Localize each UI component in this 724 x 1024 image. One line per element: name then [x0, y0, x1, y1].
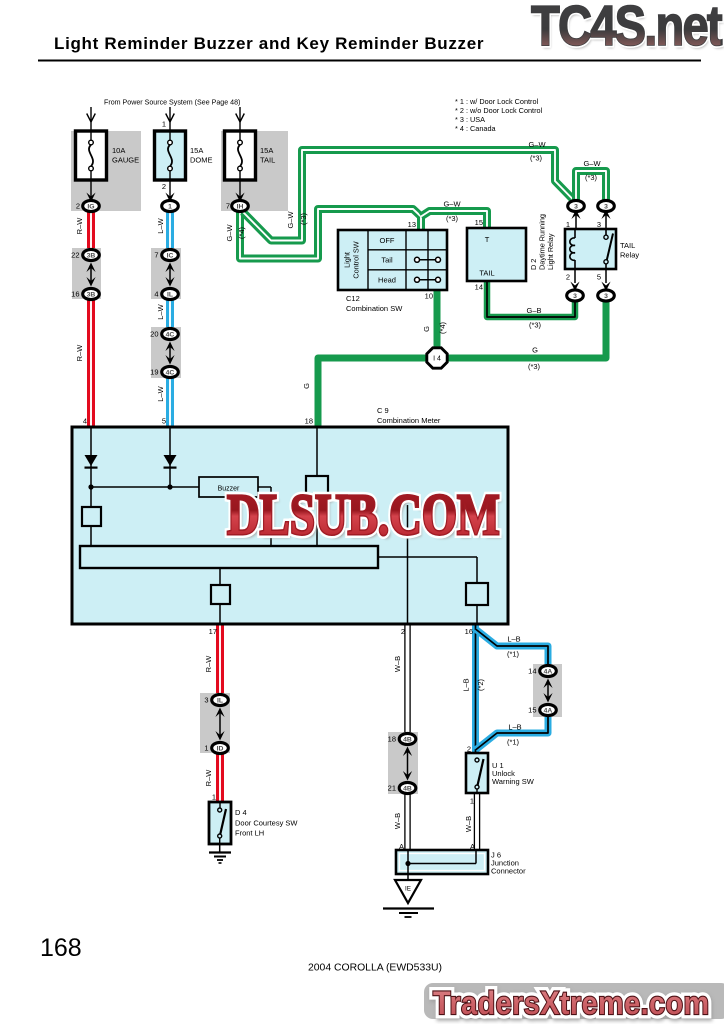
svg-text:1: 1 — [168, 203, 172, 210]
svg-text:(*3): (*3) — [530, 154, 543, 163]
svg-text:14: 14 — [475, 283, 483, 292]
svg-text:10A: 10A — [112, 146, 125, 155]
svg-text:4: 4 — [83, 417, 87, 426]
svg-text:Front LH: Front LH — [235, 829, 264, 838]
svg-text:4A: 4A — [544, 707, 553, 714]
svg-text:18: 18 — [388, 735, 396, 744]
svg-text:3: 3 — [204, 696, 208, 705]
svg-text:1: 1 — [212, 793, 216, 802]
svg-text:L–W: L–W — [156, 303, 165, 319]
svg-text:4C: 4C — [166, 331, 175, 338]
svg-text:2: 2 — [162, 182, 166, 191]
svg-text:13: 13 — [408, 220, 416, 229]
svg-text:3B: 3B — [87, 291, 96, 298]
svg-text:G: G — [532, 346, 538, 355]
svg-text:15: 15 — [475, 218, 483, 227]
svg-text:IG: IG — [87, 203, 94, 210]
svg-text:C12: C12 — [346, 294, 360, 303]
svg-text:2: 2 — [401, 627, 405, 636]
svg-text:IL: IL — [167, 291, 173, 298]
svg-text:* 4 : Canada: * 4 : Canada — [455, 124, 497, 133]
svg-text:(*3): (*3) — [529, 321, 542, 330]
svg-text:Door Courtesy SW: Door Courtesy SW — [235, 819, 298, 828]
svg-text:G–W: G–W — [583, 159, 601, 168]
svg-text:Tail: Tail — [381, 256, 393, 265]
svg-text:(*2): (*2) — [476, 678, 485, 691]
svg-text:R–W: R–W — [75, 217, 84, 235]
svg-text:TAIL: TAIL — [479, 269, 494, 278]
svg-text:Combination Meter: Combination Meter — [377, 416, 441, 425]
svg-text:4B: 4B — [403, 785, 412, 792]
svg-text:L–W: L–W — [156, 217, 165, 233]
svg-text:ID: ID — [217, 745, 224, 752]
svg-text:L–B: L–B — [508, 723, 521, 732]
svg-text:17: 17 — [209, 627, 217, 636]
svg-text:4B: 4B — [403, 736, 412, 743]
svg-text:(*1): (*1) — [507, 650, 520, 659]
svg-text:Control SW: Control SW — [352, 241, 361, 278]
svg-text:15: 15 — [528, 706, 536, 715]
svg-text:(*4): (*4) — [438, 321, 447, 334]
svg-text:20: 20 — [150, 330, 158, 339]
svg-text:19: 19 — [150, 368, 158, 377]
svg-text:G–W: G–W — [528, 140, 546, 149]
svg-text:L–B: L–B — [462, 678, 471, 691]
svg-text:Relay: Relay — [620, 251, 639, 260]
svg-text:R–W: R–W — [204, 769, 213, 787]
svg-text:4C: 4C — [166, 369, 175, 376]
svg-text:168: 168 — [40, 934, 82, 962]
svg-text:R–W: R–W — [204, 655, 213, 673]
svg-text:IE: IE — [405, 886, 411, 893]
svg-text:Light Relay: Light Relay — [546, 233, 555, 270]
svg-text:3B: 3B — [87, 252, 96, 259]
svg-text:18: 18 — [305, 417, 313, 426]
svg-text:(*3): (*3) — [446, 214, 459, 223]
svg-text:Warning SW: Warning SW — [492, 777, 535, 786]
svg-text:2004 COROLLA (EWD533U): 2004 COROLLA (EWD533U) — [308, 963, 442, 974]
svg-text:From Power Source System (See: From Power Source System (See Page 48) — [104, 99, 240, 107]
svg-text:IC: IC — [167, 252, 174, 259]
svg-text:1: 1 — [162, 120, 166, 129]
svg-text:* 3 : USA: * 3 : USA — [455, 115, 485, 124]
svg-text:* 2 : w/o Door Lock Control: * 2 : w/o Door Lock Control — [455, 106, 543, 115]
svg-text:IH: IH — [237, 203, 244, 210]
svg-text:IL: IL — [217, 697, 223, 704]
svg-text:3: 3 — [604, 203, 608, 210]
svg-text:Light: Light — [343, 252, 352, 268]
svg-text:14: 14 — [528, 667, 536, 676]
svg-text:Connector: Connector — [491, 867, 526, 876]
svg-text:TAIL: TAIL — [260, 156, 275, 165]
svg-text:3: 3 — [604, 293, 608, 300]
svg-text:21: 21 — [388, 784, 396, 793]
svg-text:L–W: L–W — [156, 385, 165, 401]
svg-text:G–B: G–B — [526, 306, 541, 315]
svg-text:15A: 15A — [190, 146, 203, 155]
svg-text:G: G — [422, 326, 431, 332]
svg-text:3: 3 — [573, 293, 577, 300]
svg-text:3: 3 — [597, 220, 601, 229]
svg-text:2: 2 — [76, 202, 80, 211]
svg-text:4: 4 — [154, 290, 158, 299]
svg-text:1: 1 — [204, 744, 208, 753]
svg-text:2: 2 — [566, 273, 570, 282]
svg-text:15A: 15A — [260, 146, 273, 155]
svg-text:10: 10 — [425, 292, 433, 301]
svg-text:(*4): (*4) — [237, 226, 246, 239]
svg-text:D 4: D 4 — [235, 808, 247, 817]
svg-text:(*1): (*1) — [507, 738, 520, 747]
svg-text:5: 5 — [597, 273, 601, 282]
svg-text:5: 5 — [162, 417, 166, 426]
svg-text:16: 16 — [465, 627, 473, 636]
svg-text:R–W: R–W — [75, 344, 84, 362]
svg-text:G–W: G–W — [286, 211, 295, 229]
svg-text:16: 16 — [71, 290, 79, 299]
svg-text:(*3): (*3) — [299, 212, 308, 225]
svg-text:G: G — [302, 383, 311, 389]
svg-text:1: 1 — [566, 220, 570, 229]
svg-text:T: T — [485, 235, 490, 244]
svg-text:GAUGE: GAUGE — [112, 156, 139, 165]
svg-text:* 1 : w/ Door Lock Control: * 1 : w/ Door Lock Control — [455, 97, 539, 106]
svg-text:Combination SW: Combination SW — [346, 304, 403, 313]
svg-text:I 4: I 4 — [433, 356, 441, 363]
svg-text:W–B: W–B — [464, 816, 473, 832]
svg-text:C 9: C 9 — [377, 406, 389, 415]
svg-text:G–W: G–W — [443, 200, 461, 209]
svg-text:7: 7 — [154, 251, 158, 260]
svg-text:TAIL: TAIL — [620, 241, 635, 250]
svg-text:(*3): (*3) — [528, 362, 541, 371]
svg-text:W–B: W–B — [393, 656, 402, 672]
svg-text:G–W: G–W — [225, 224, 234, 242]
svg-text:4A: 4A — [544, 668, 553, 675]
svg-text:22: 22 — [71, 251, 79, 260]
svg-text:7: 7 — [226, 202, 230, 211]
svg-text:Head: Head — [378, 276, 396, 285]
svg-text:1: 1 — [470, 797, 474, 806]
svg-text:DOME: DOME — [190, 156, 213, 165]
svg-text:W–B: W–B — [393, 813, 402, 829]
svg-text:3: 3 — [574, 203, 578, 210]
svg-text:OFF: OFF — [380, 236, 395, 245]
svg-text:(*3): (*3) — [585, 173, 598, 182]
svg-text:L–B: L–B — [507, 635, 520, 644]
